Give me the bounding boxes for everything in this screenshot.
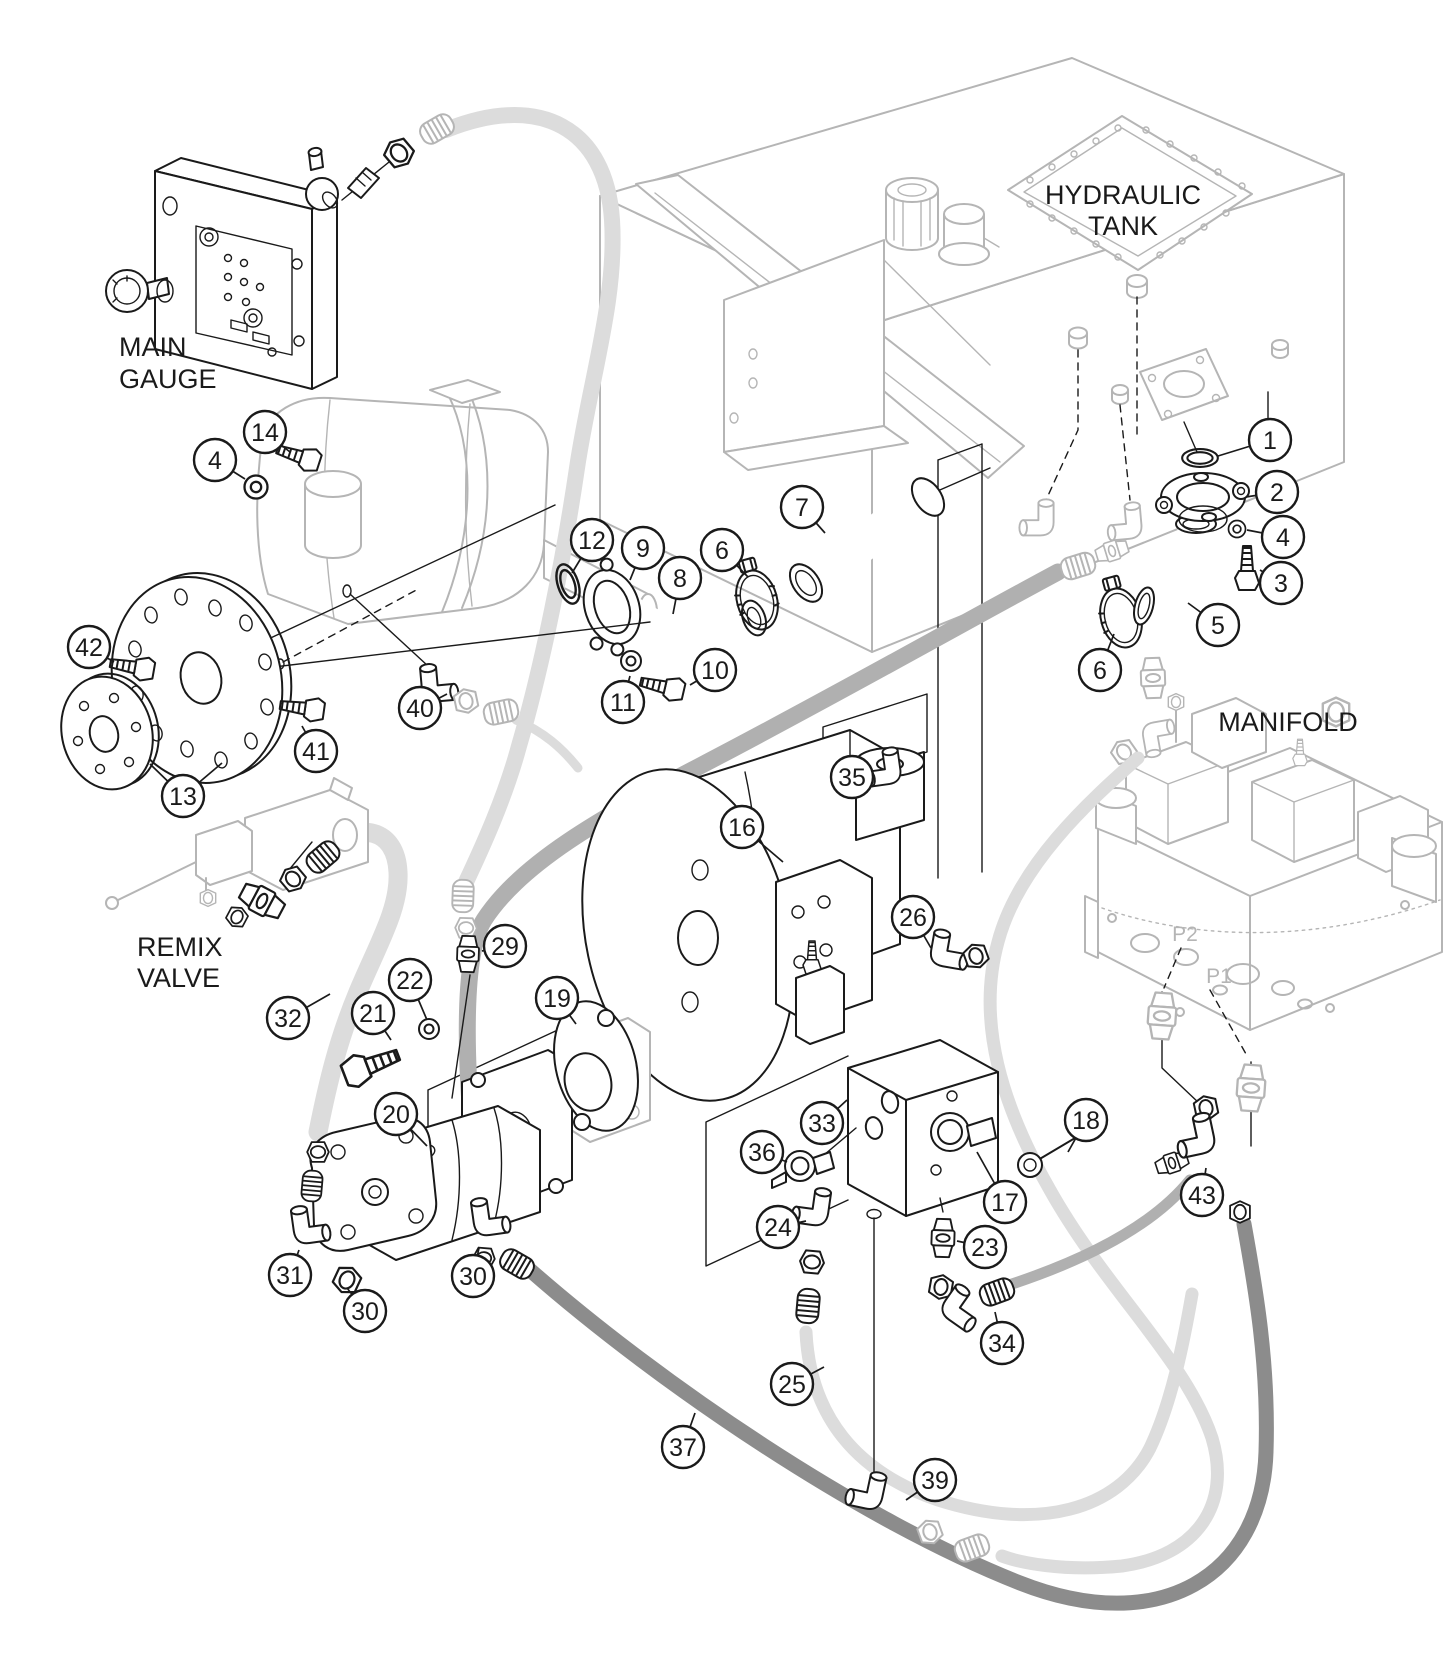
washer-22: [419, 1019, 439, 1039]
callout-23: 23: [957, 1226, 1006, 1268]
callout-number: 17: [991, 1189, 1019, 1217]
callout-number: 33: [808, 1110, 836, 1138]
remix-valve: [106, 778, 368, 930]
callout-number: 20: [382, 1101, 410, 1129]
callout-number: 6: [715, 537, 729, 565]
bolt-3: [1235, 546, 1259, 590]
callout-number: 10: [701, 657, 729, 685]
callout-number: 32: [274, 1005, 302, 1033]
callout-37: 37: [662, 1413, 704, 1468]
callout-number: 34: [988, 1330, 1016, 1358]
elbow-26: [929, 928, 991, 971]
callout-35: 35: [831, 756, 873, 798]
callout-10: 10: [690, 649, 736, 691]
callout-4a: 4: [194, 439, 245, 481]
callout-number: 23: [971, 1234, 999, 1262]
callout-number: 29: [491, 933, 519, 961]
callout-number: 5: [1211, 612, 1225, 640]
hose-37: [530, 1224, 1266, 1603]
callout-number: 30: [459, 1263, 487, 1291]
callout-5: 5: [1188, 603, 1239, 646]
callout-19: 19: [536, 977, 578, 1024]
callout-number: 8: [673, 565, 687, 593]
tank-breather-cap: [886, 178, 938, 250]
callout-42: 42: [68, 626, 114, 668]
washer-4-right: [1229, 521, 1246, 538]
callout-number: 11: [610, 689, 636, 717]
callout-number: 42: [75, 634, 103, 662]
callout-3: 3: [1260, 562, 1302, 604]
callout-number: 12: [578, 527, 606, 555]
callout-11: 11: [602, 676, 644, 723]
washer-11: [621, 651, 641, 671]
callout-number: 39: [921, 1467, 949, 1495]
label-manifold: MANIFOLD: [1218, 707, 1358, 737]
label-remix-valve: REMIXVALVE: [137, 932, 223, 993]
callout-number: 4: [1276, 524, 1290, 552]
callout-number: 6: [1093, 657, 1107, 685]
bolt-41: [279, 693, 326, 723]
callout-22: 22: [389, 959, 431, 1020]
callout-number: 31: [276, 1262, 304, 1290]
callout-number: 1: [1263, 427, 1277, 455]
callout-29: 29: [482, 925, 526, 967]
callout-number: 18: [1072, 1107, 1100, 1135]
callout-number: 26: [899, 904, 927, 932]
fitting-23: [928, 1198, 955, 1301]
hydraulic-parts-diagram: MAINGAUGEHYDRAULICTANKREMIXVALVEMANIFOLD…: [0, 0, 1445, 1670]
diagram-canvas: MAINGAUGEHYDRAULICTANKREMIXVALVEMANIFOLD…: [0, 0, 1445, 1670]
bolt-10: [638, 670, 686, 703]
fitting-29: [452, 879, 479, 972]
callout-43: 43: [1181, 1168, 1223, 1216]
elbow-24: [791, 1184, 832, 1324]
callout-21: 21: [352, 992, 394, 1040]
ghost-tee-fitting: [1140, 658, 1165, 699]
callout-number: 22: [396, 967, 424, 995]
callout-31: 31: [269, 1250, 311, 1296]
washer-4-left: [245, 476, 268, 499]
callout-33: 33: [801, 1100, 847, 1144]
callout-30a: 30: [344, 1288, 386, 1332]
callout-number: 24: [764, 1214, 792, 1242]
callout-number: 2: [1270, 479, 1284, 507]
callout-39: 39: [906, 1459, 956, 1501]
callout-8: 8: [659, 557, 701, 614]
callout-9: 9: [622, 527, 664, 580]
callout-number: 37: [669, 1434, 697, 1462]
callout-number: 35: [838, 764, 866, 792]
callout-number: 41: [302, 738, 330, 766]
callout-number: 3: [1274, 570, 1288, 598]
bolt-21: [339, 1040, 404, 1090]
callout-41: 41: [295, 726, 337, 772]
callout-number: 7: [795, 494, 809, 522]
callout-number: 4: [208, 447, 222, 475]
callout-number: 14: [251, 419, 279, 447]
callout-number: 30: [351, 1298, 379, 1326]
callout-number: 21: [359, 1000, 387, 1028]
ghost-union-fitting: [1147, 992, 1178, 1040]
callout-number: 25: [778, 1371, 806, 1399]
ghost-union-fitting: [1236, 1064, 1267, 1112]
callout-4b: 4: [1247, 516, 1304, 558]
callout-number: 16: [728, 814, 756, 842]
label-port-p2: P2: [1172, 923, 1198, 946]
callout-number: 43: [1188, 1182, 1216, 1210]
callout-number: 13: [169, 783, 197, 811]
callout-number: 19: [543, 985, 571, 1013]
callout-number: 9: [636, 535, 650, 563]
label-port-p1: P1: [1206, 965, 1232, 988]
callout-number: 36: [748, 1139, 776, 1167]
callout-32: 32: [267, 994, 330, 1039]
callout-34: 34: [981, 1312, 1023, 1364]
gauge-fittings: [306, 111, 457, 211]
callout-18: 18: [1065, 1099, 1107, 1152]
callout-number: 40: [406, 695, 434, 723]
callout-36: 36: [741, 1131, 787, 1173]
